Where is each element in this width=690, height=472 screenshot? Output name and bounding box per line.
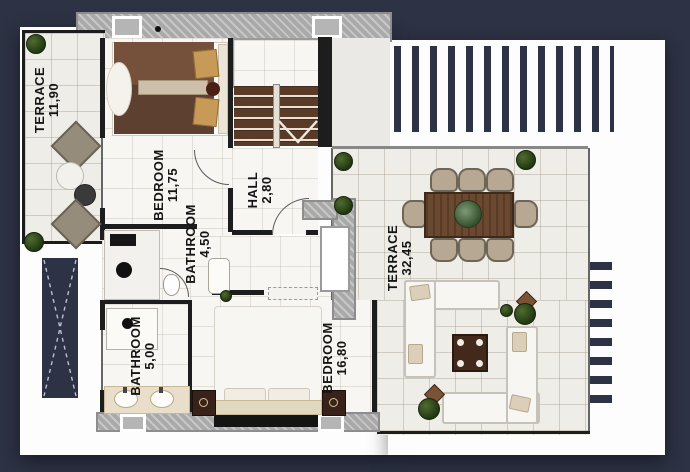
bed-upper-throw (106, 62, 132, 116)
wall (228, 38, 233, 148)
room-name: HALL (246, 172, 260, 209)
dining-chair (430, 238, 458, 262)
dining-chair (486, 168, 514, 192)
room-area: 16,80 (335, 340, 349, 375)
plant-icon (334, 152, 353, 171)
table-centerpiece-plant (454, 200, 482, 228)
room-area: 5,00 (143, 342, 157, 369)
vanity-appliance (110, 234, 136, 246)
stair-landing (232, 38, 324, 88)
plant-icon (500, 304, 513, 317)
faucet-icon (123, 387, 127, 393)
dining-chair (486, 238, 514, 262)
wall-post (312, 16, 342, 38)
wall-post (318, 414, 344, 432)
wall (228, 188, 233, 232)
nightstand-knob (199, 398, 208, 407)
faucet-icon (159, 387, 163, 393)
room-label-bedroom-lower: BEDROOM 16,80 (320, 303, 350, 413)
room-name: BEDROOM (321, 322, 335, 393)
room-name: BATHROOM (129, 316, 143, 396)
wall-post (120, 414, 146, 432)
room-name: TERRACE (33, 67, 47, 133)
stair-direction-arrow (276, 118, 320, 146)
bed-lower-base (214, 400, 322, 415)
bed-pillow (193, 97, 220, 127)
room-name: BATHROOM (184, 204, 198, 284)
bed-pillow (193, 49, 220, 79)
wall-entry-pier (318, 37, 332, 147)
room-area: 11,75 (166, 168, 180, 202)
room-label-terrace-upper: TERRACE 11,90 (32, 45, 62, 155)
entry-porch-floor (332, 38, 390, 148)
sofa-pillow (512, 332, 527, 352)
floor-plan: TERRACE 11,90 BEDROOM 11,75 BATHROOM 4,5… (0, 0, 690, 472)
terrace-edge (588, 148, 590, 434)
pergola-stripes-top (394, 46, 614, 132)
room-label-bathroom-upper: BATHROOM 4,50 (183, 189, 213, 299)
room-area: 32,45 (400, 240, 414, 275)
sink-icon (116, 262, 132, 278)
room-label-bedroom-upper: BEDROOM 11,75 (151, 130, 181, 240)
entry-door (320, 226, 350, 292)
dining-chair (430, 168, 458, 192)
coffee-cup-icon (457, 339, 464, 346)
toilet-icon (163, 274, 180, 296)
coffee-cup-icon (476, 339, 483, 346)
plant-icon (24, 232, 44, 252)
room-name: BEDROOM (152, 149, 166, 220)
room-area: 2,80 (260, 176, 274, 203)
plant-icon (334, 196, 353, 215)
dining-chair (458, 238, 486, 262)
plant-icon (516, 150, 536, 170)
plant-icon (418, 398, 440, 420)
wall (100, 304, 105, 330)
room-area: 11,90 (47, 83, 61, 117)
room-label-bathroom-lower: BATHROOM 5,00 (128, 301, 158, 411)
coffee-table (452, 334, 488, 372)
window-line (101, 330, 103, 390)
window-band (214, 415, 318, 427)
dining-chair (458, 168, 486, 192)
wall-fixture-dot (155, 26, 161, 32)
room-name: TERRACE (386, 225, 400, 291)
plant-icon (220, 290, 232, 302)
room-label-hall: HALL 2,80 (245, 135, 275, 245)
void-skylight (42, 258, 78, 398)
terrace-edge (332, 146, 588, 149)
room-area: 4,50 (198, 230, 212, 257)
wall-post (112, 16, 142, 38)
terrace-edge (377, 431, 590, 434)
wall (100, 38, 105, 138)
plant-icon (514, 303, 536, 325)
skylight-x-icon (42, 258, 78, 398)
coffee-cup-icon (476, 360, 483, 367)
wardrobe-dashed (268, 287, 318, 300)
dining-chair (514, 200, 538, 228)
window-line (101, 138, 103, 208)
coffee-cup-icon (457, 360, 464, 367)
sofa-pillow (408, 344, 423, 364)
bed-upper-runner (138, 80, 208, 95)
bed-cushion (206, 82, 220, 96)
room-label-terrace-main: TERRACE 32,45 (385, 203, 415, 313)
